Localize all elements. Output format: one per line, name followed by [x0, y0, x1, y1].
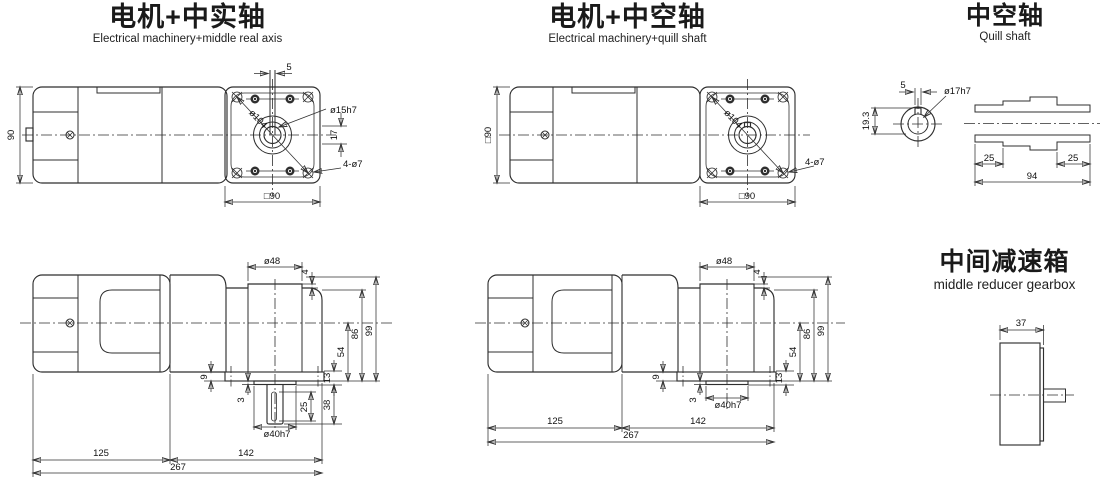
dim-hside-boss-t-label: 3: [688, 397, 699, 402]
dim-hside-h13-label: 13: [774, 373, 785, 384]
dim-sside-key-len-label: 25: [299, 402, 310, 413]
gearbox-input-shaft: [1044, 389, 1066, 402]
dim-quill-bore-depth: 19.3: [861, 108, 912, 134]
solid-side-view: ø48 4 13 38: [20, 256, 392, 477]
quill-end-view: 5 19.3 ø17h7: [861, 80, 971, 150]
dim-flange-thickness: 9: [651, 361, 677, 392]
dim-boss-height: 4: [752, 269, 770, 300]
dim-h86: 86: [322, 290, 366, 381]
dim-h99: 99: [758, 277, 832, 381]
dim-hside-boss-h-label: 4: [752, 269, 763, 274]
dim-quill-bore-dia-label: ø17h7: [944, 86, 971, 97]
dim-gearbox-width: 37: [1000, 318, 1044, 345]
dim-hside-h99-label: 99: [816, 326, 827, 337]
dim-sside-flange-t-label: 9: [199, 374, 210, 379]
dim-shaft-dia: ø15h7: [279, 105, 357, 127]
dim-quill-bore-depth-label: 19.3: [861, 112, 872, 131]
dim-quill-total-len: 94: [975, 171, 1090, 182]
dim-quill-left-len: 25: [975, 144, 1003, 186]
dim-sside-h86-label: 86: [350, 329, 361, 340]
dim-sside-gear-len-label: 142: [238, 448, 254, 459]
dim-sside-total-len-label: 267: [170, 462, 186, 473]
dim-hside-flange-t-label: 9: [651, 374, 662, 379]
dim-h86: 86: [774, 290, 818, 381]
dim-hollow-face-label: □90: [739, 191, 755, 202]
dim-sside-boss-t-label: 3: [236, 397, 247, 402]
dim-solid-key-width-label: 5: [286, 62, 291, 73]
dim-hside-motor-len-label: 125: [547, 416, 563, 427]
dim-shaft-len: 38: [284, 385, 342, 424]
dim-boss-dia: ø48: [700, 256, 754, 281]
dim-solid-key-span-label: 17: [329, 130, 340, 141]
dim-hside-pilot-dia-label: ø40h7: [715, 400, 742, 411]
dim-hside-h86-label: 86: [802, 329, 813, 340]
hollow-side-view: ø48 4 13 54 8: [475, 256, 845, 446]
dim-boss-dia: ø48: [248, 256, 302, 281]
dim-h13: 13: [296, 360, 342, 396]
dim-quill-key-width-label: 5: [900, 80, 905, 91]
dim-h54: 54: [788, 323, 800, 381]
dim-boss-height: 4: [300, 269, 318, 300]
dim-sside-h13-label: 13: [322, 373, 333, 384]
dim-sside-motor-len-label: 125: [93, 448, 109, 459]
dim-boss-thickness: 3: [688, 371, 706, 403]
engineering-drawing-canvas: 5 ø104 ø15h7 17 4-ø7: [0, 0, 1114, 480]
dim-key-width: 5: [254, 62, 292, 74]
dim-solid-shaft-dia-label: ø15h7: [330, 105, 357, 116]
quill-section-view: 25 25 94: [964, 97, 1100, 186]
dim-mount-holes: 4-ø7: [789, 157, 825, 172]
dim-hside-h54-label: 54: [788, 347, 799, 358]
dim-hollow-mount-holes-label: 4-ø7: [805, 157, 825, 168]
dim-h54: 54: [336, 323, 348, 381]
dim-sside-pilot-dia-label: ø40h7: [264, 429, 291, 440]
dim-flange-thickness: 9: [199, 361, 225, 392]
dim-mount-holes: 4-ø7: [314, 159, 363, 172]
dim-hollow-height-label: □90: [483, 127, 494, 143]
dim-hside-total-len-label: 267: [623, 430, 639, 441]
dim-solid-mount-holes-label: 4-ø7: [343, 159, 363, 170]
drawing-sheet: 电机+中实轴 Electrical machinery+middle real …: [0, 0, 1114, 480]
dim-hside-boss-dia-label: ø48: [716, 256, 732, 267]
dim-quill-right-len-label: 25: [1068, 153, 1079, 164]
solid-top-view: 5 ø104 ø15h7 17 4-ø7: [6, 62, 363, 207]
dim-key-len: 25: [279, 392, 316, 421]
gearbox-side-view: 37: [990, 318, 1074, 445]
dim-sside-shaft-len-label: 38: [322, 400, 333, 411]
dim-boss-thickness: 3: [236, 371, 254, 403]
dim-sside-h54-label: 54: [336, 347, 347, 358]
dim-quill-left-len-label: 25: [984, 153, 995, 164]
dim-sside-boss-dia-label: ø48: [264, 256, 280, 267]
dim-sside-h99-label: 99: [364, 326, 375, 337]
dim-lengths: 125 142 267: [33, 374, 322, 477]
dim-sside-boss-h-label: 4: [300, 269, 311, 274]
dim-quill-total-len-label: 94: [1027, 171, 1038, 182]
dim-quill-right-len: 25: [1057, 144, 1090, 186]
hollow-top-view: ø104 4-ø7 □90 □90: [483, 79, 825, 207]
dim-solid-face-label: □90: [264, 191, 280, 202]
dim-solid-height-label: 90: [6, 130, 17, 141]
dim-h99: 99: [306, 277, 380, 381]
dim-key-span: 17: [322, 113, 347, 157]
dim-hside-gear-len-label: 142: [690, 416, 706, 427]
dim-h13: 13: [748, 360, 794, 396]
dim-gearbox-width-label: 37: [1016, 318, 1027, 329]
